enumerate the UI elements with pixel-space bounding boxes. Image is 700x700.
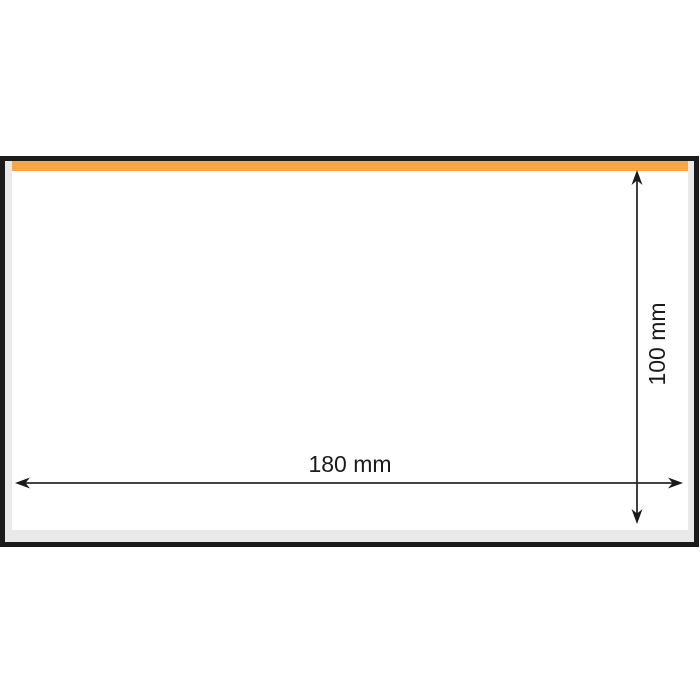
diagram-canvas: 180 mm 100 mm xyxy=(0,0,700,700)
orange-strip xyxy=(12,161,688,171)
height-dimension-label: 100 mm xyxy=(645,244,669,444)
panel-outline xyxy=(0,156,699,547)
width-dimension-label: 180 mm xyxy=(250,452,450,476)
